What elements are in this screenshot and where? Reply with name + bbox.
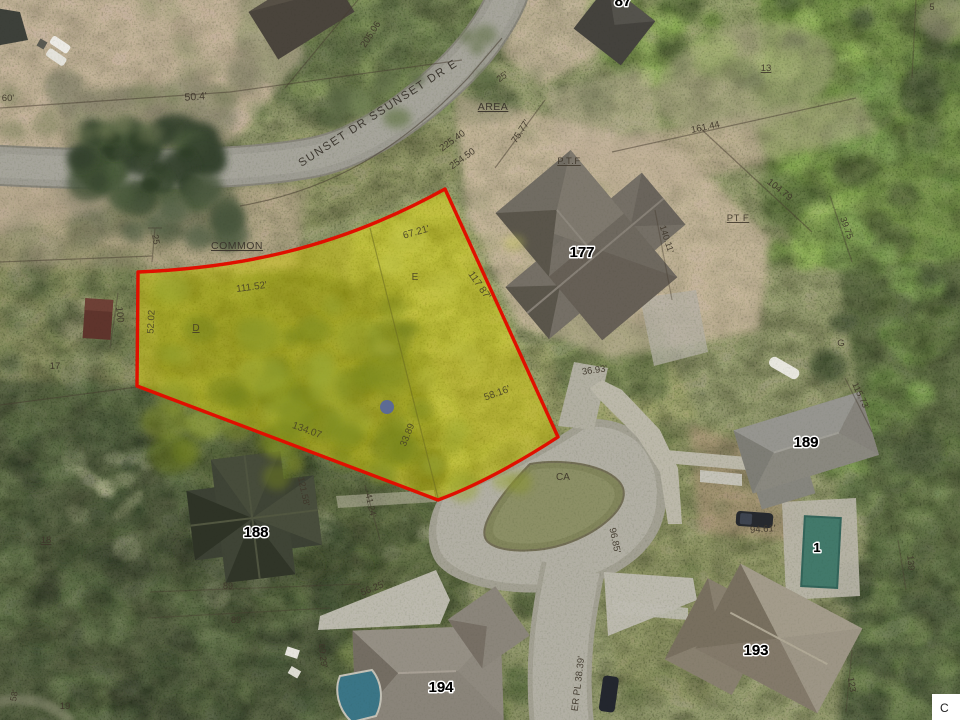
svg-text:CA: CA (556, 472, 570, 483)
svg-text:PT F: PT F (727, 213, 749, 224)
svg-text:58': 58' (8, 689, 20, 703)
svg-text:194: 194 (428, 679, 454, 696)
svg-text:89: 89 (223, 581, 233, 591)
svg-text:177: 177 (569, 244, 594, 261)
svg-text:13: 13 (761, 63, 772, 74)
svg-text:P.T.F: P.T.F (557, 156, 580, 167)
svg-text:D: D (192, 323, 199, 334)
svg-text:17: 17 (50, 361, 61, 372)
svg-text:139: 139 (905, 555, 916, 571)
svg-text:C: C (940, 701, 949, 715)
svg-text:COMMON: COMMON (211, 240, 263, 252)
svg-text:188: 188 (243, 524, 268, 541)
svg-text:193: 193 (743, 642, 768, 659)
svg-text:E: E (412, 272, 419, 283)
svg-text:89: 89 (231, 615, 241, 625)
svg-text:100: 100 (113, 306, 126, 323)
svg-text:19: 19 (60, 701, 71, 712)
svg-text:1: 1 (813, 540, 820, 555)
svg-text:G: G (837, 338, 844, 349)
svg-text:87: 87 (615, 0, 632, 10)
svg-text:52.02: 52.02 (145, 310, 157, 334)
svg-text:AREA: AREA (478, 101, 509, 113)
svg-text:50.4': 50.4' (184, 90, 207, 104)
svg-text:18: 18 (41, 535, 52, 546)
svg-text:60': 60' (2, 93, 15, 104)
svg-text:5: 5 (929, 2, 934, 12)
svg-text:189: 189 (793, 434, 818, 451)
svg-text:94.61': 94.61' (750, 523, 776, 536)
svg-text:25: 25 (150, 234, 162, 246)
